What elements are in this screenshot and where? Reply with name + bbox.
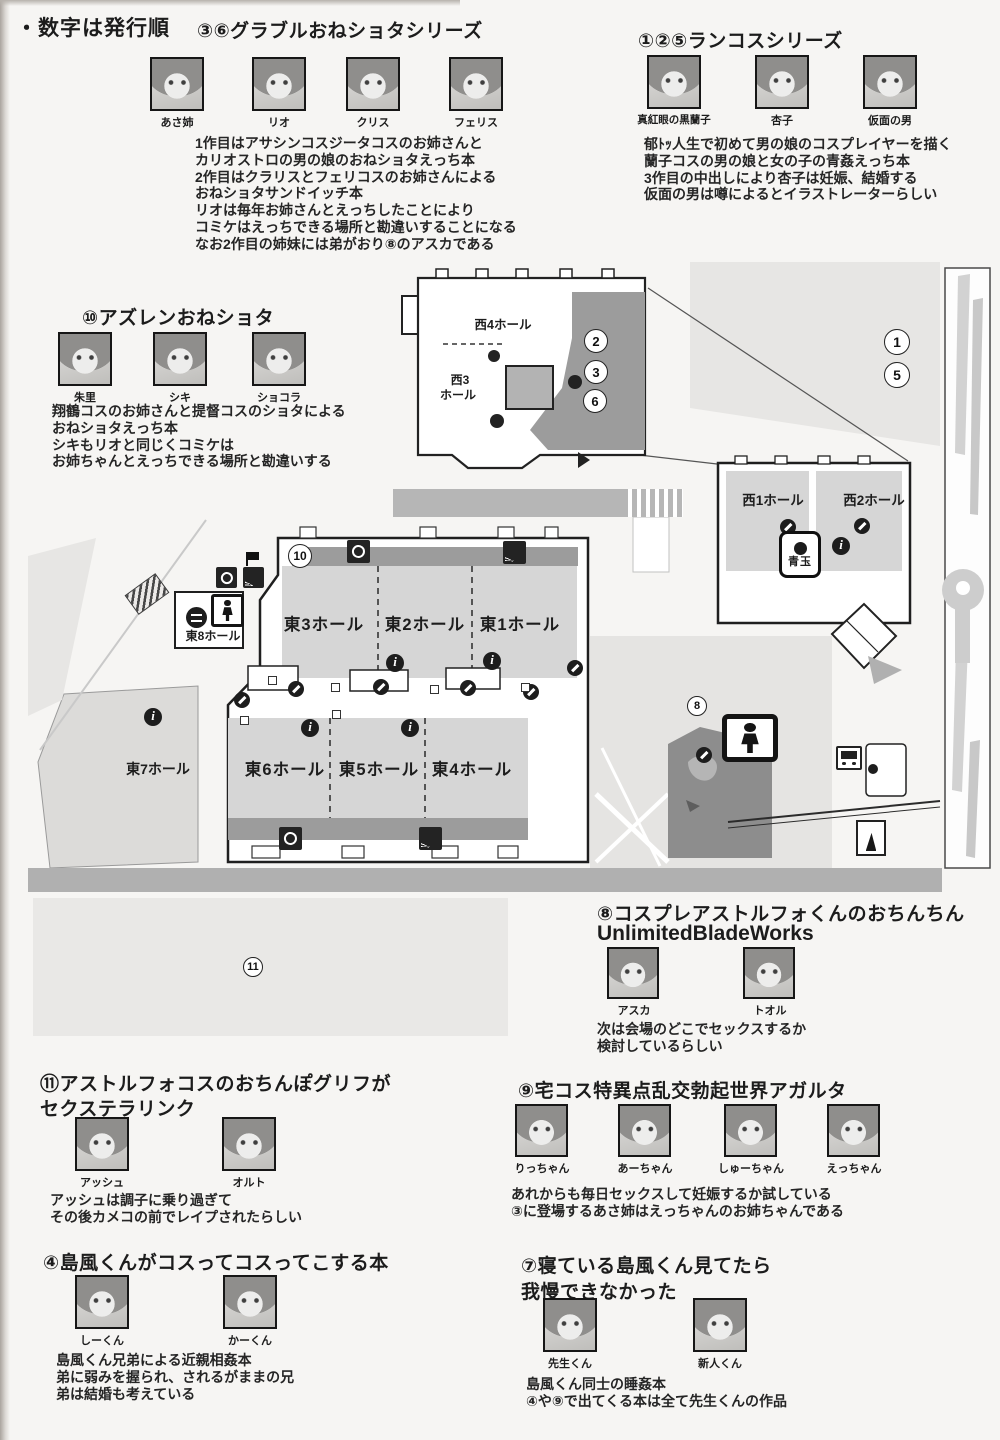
desc-line: 郁ﾄｯ人生で初めて男の娘のコスプレイヤーを描く (644, 136, 952, 153)
character-name: リオ (268, 114, 290, 130)
escalator-icon (234, 692, 250, 708)
character: 仮面の男 (863, 55, 917, 109)
character-avatar (346, 57, 400, 111)
desc-line: 1作目はアサシンコスジータコスのお姉さんと (195, 135, 517, 152)
desc-line: 弟は結婚も考えている (56, 1386, 294, 1403)
character: りっちゃん (515, 1104, 569, 1157)
desc-line: 島風くん兄弟による近親相姦本 (56, 1352, 294, 1369)
character-name: あさ姉 (161, 114, 194, 130)
map-marker-11: 11 (243, 957, 263, 977)
character-avatar (449, 57, 503, 111)
character: 先生くん (543, 1298, 597, 1352)
character-name: フェリス (454, 114, 498, 130)
info-icon (144, 708, 162, 726)
character: かーくん (223, 1275, 277, 1329)
hall-label-east5: 東5ホール (339, 756, 419, 780)
character-avatar (150, 57, 204, 111)
hall-label-east4: 東4ホール (432, 756, 512, 780)
pillar-marker (268, 676, 277, 685)
character-avatar (743, 947, 795, 999)
character-avatar (755, 55, 809, 109)
desc-line: お姉ちゃんとえっちできる場所と勘違いする (52, 453, 346, 470)
character-name: 杏子 (771, 112, 793, 128)
page-note: ・数字は発行順 (16, 12, 170, 42)
info-icon (483, 652, 501, 670)
character: あさ姉 (150, 57, 204, 111)
badge-dot-icon (794, 542, 807, 555)
desc-line: おねショタサンドイッチ本 (195, 185, 517, 202)
section-title-rancos: ①②⑤ランコスシリーズ (638, 26, 843, 53)
section-description: 1作目はアサシンコスジータコスのお姉さんと カリオストロの男の娘のおねショタえっ… (195, 135, 517, 253)
section-description: 翔鶴コスのお姉さんと提督コスのショタによる おねショタえっち本 シキもリオと同じ… (52, 403, 346, 470)
hall-label-east6: 東6ホール (245, 756, 325, 780)
pillar-marker (331, 683, 340, 692)
character-avatar (75, 1117, 129, 1171)
escalator-icon (288, 681, 304, 697)
hall-label-west1: 西1ホール (742, 489, 804, 509)
doujin-afterword-page: ・数字は発行順 ③⑥グラブルおねショタシリーズ あさ姉 リオ クリス フェリス … (0, 0, 1000, 1440)
character-avatar (75, 1275, 129, 1329)
character: リオ (252, 57, 306, 111)
meeting-point-badge: 青玉 (779, 531, 821, 578)
changing-room-icon (503, 541, 526, 564)
character: しゅーちゃん (724, 1104, 778, 1157)
character-name: えっちゃん (827, 1160, 882, 1176)
hall-label-east3: 東3ホール (284, 611, 364, 635)
character-name: アッシュ (80, 1174, 124, 1190)
character: えっちゃん (827, 1104, 881, 1157)
desc-line: 島風くん同士の睡姦本 (526, 1376, 787, 1393)
desc-line: 弟に弱みを握られ、されるがままの兄 (56, 1369, 294, 1386)
character-avatar (724, 1104, 777, 1157)
character-name: 先生くん (548, 1355, 592, 1371)
character-avatar (607, 947, 659, 999)
crosswalk (628, 489, 683, 517)
escalator-icon (854, 518, 870, 534)
section-title-granblue: ③⑥グラブルおねショタシリーズ (197, 16, 483, 43)
pillar-marker (521, 683, 530, 692)
escalator-icon (567, 660, 583, 676)
changing-room-icon (419, 827, 442, 850)
desc-line: 2作目はクラリスとフェリコスのお姉さんによる (195, 169, 517, 186)
character-avatar (515, 1104, 568, 1157)
info-icon (401, 719, 419, 737)
monument-icon (856, 820, 886, 856)
character-avatar (693, 1298, 747, 1352)
station-icon (186, 607, 207, 628)
character-avatar (222, 1117, 276, 1171)
section-description: 郁ﾄｯ人生で初めて男の娘のコスプレイヤーを描く 蘭子コスの男の娘と女の子の青姦え… (644, 136, 952, 203)
map-marker-8: 8 (687, 696, 707, 716)
desc-line: なお2作目の姉妹には弟がおり⑧のアスカである (195, 236, 517, 253)
character-name: かーくん (228, 1332, 272, 1348)
dot-icon (868, 764, 878, 774)
desc-line: カリオストロの男の娘のおねショタえっち本 (195, 152, 517, 169)
character-avatar (58, 332, 112, 386)
pillar-marker (240, 716, 249, 725)
character-name: オルト (233, 1174, 266, 1190)
desc-line: 蘭子コスの男の娘と女の子の青姦えっち本 (644, 153, 952, 170)
escalator-icon (696, 747, 712, 763)
section-title-azurlane: ⑩アズレンおねショタ (82, 303, 274, 330)
cloakroom-icon (279, 827, 302, 850)
section-title-shimakaze7: ⑦寝ている島風くん見てたら (521, 1251, 772, 1278)
character-avatar (827, 1104, 880, 1157)
character-name: 真紅眼の黒蘭子 (637, 112, 711, 127)
map-marker-1: 1 (884, 329, 910, 355)
desc-line: 検討しているらしい (597, 1038, 806, 1055)
character-name: あーちゃん (618, 1160, 673, 1176)
section-title-agartha9: ⑨宅コス特異点乱交勃起世界アガルタ (518, 1076, 847, 1103)
character: シキ (153, 332, 207, 386)
section-title-shimakaze4: ④島風くんがコスってコスってこする本 (43, 1248, 389, 1275)
map-marker-2: 2 (584, 329, 608, 353)
escalator-icon (460, 680, 476, 696)
character-name: 仮面の男 (868, 112, 912, 128)
section-description: 島風くん同士の睡姦本 ④や⑨で出てくる本は全て先生くんの作品 (526, 1376, 787, 1410)
map-marker-10: 10 (288, 544, 312, 568)
desc-line: シキもリオと同じくコミケは (52, 437, 346, 454)
character-name: クリス (357, 114, 390, 130)
character: アスカ (607, 947, 661, 999)
character: オルト (222, 1117, 276, 1171)
flag-icon (246, 552, 258, 566)
desc-line: あれからも毎日セックスして妊娠するか試している (511, 1186, 844, 1203)
storage-hatched-box (125, 573, 170, 615)
toilet-icon (722, 714, 778, 762)
character-avatar (153, 332, 207, 386)
desc-line: おねショタえっち本 (52, 420, 346, 437)
character-avatar (543, 1298, 597, 1352)
character-name: りっちゃん (515, 1160, 570, 1176)
character: 新人くん (693, 1298, 747, 1352)
page-edge-shadow-top (0, 0, 460, 6)
info-icon (386, 654, 404, 672)
character-avatar (647, 55, 701, 109)
desc-line: 仮面の男は噂によるとイラストレーターらしい (644, 186, 952, 203)
character: あーちゃん (618, 1104, 672, 1157)
toilet-icon (211, 594, 244, 627)
hall-label-west2: 西2ホール (843, 489, 905, 509)
character: 杏子 (755, 55, 809, 109)
section-description: 次は会場のどこでセックスするか 検討しているらしい (597, 1021, 806, 1055)
character: アッシュ (75, 1117, 129, 1171)
page-edge-shadow (0, 0, 10, 1440)
character-avatar (252, 57, 306, 111)
desc-line: 翔鶴コスのお姉さんと提督コスのショタによる (52, 403, 346, 420)
bus-stop-icon (836, 746, 862, 770)
section-title-astolfo8-line2: UnlimitedBladeWorks (597, 922, 814, 946)
changing-room-icon (243, 567, 264, 588)
character-name: 新人くん (698, 1355, 742, 1371)
hall-label-east8: 東8ホール (186, 627, 241, 644)
character: トオル (743, 947, 797, 999)
cloakroom-icon (216, 567, 237, 588)
cloakroom-icon (347, 540, 370, 563)
character-name: しーくん (80, 1332, 124, 1348)
info-icon (832, 537, 850, 555)
pillar-marker (430, 685, 439, 694)
section-title-astolfo11: ⑪アストルフォコスのおちんぽグリフが (40, 1069, 391, 1096)
desc-line: ③に登場するあさ姉はえっちゃんのお姉ちゃんである (511, 1203, 844, 1220)
character: クリス (346, 57, 400, 111)
desc-line: リオは毎年お姉さんとえっちしたことにより (195, 202, 517, 219)
character-name: トオル (754, 1002, 787, 1018)
desc-line: その後カメコの前でレイプされたらしい (50, 1209, 302, 1226)
escalator-icon (373, 679, 389, 695)
desc-line: ④や⑨で出てくる本は全て先生くんの作品 (526, 1393, 787, 1410)
character: ショコラ (252, 332, 306, 386)
badge-label: 青玉 (788, 557, 812, 568)
map-marker-3: 3 (584, 360, 608, 384)
pillar-marker (332, 710, 341, 719)
hall-label-west3-line2: ホール (440, 386, 476, 403)
character: 朱里 (58, 332, 112, 386)
character-avatar (252, 332, 306, 386)
section-description: あれからも毎日セックスして妊娠するか試している ③に登場するあさ姉はえっちゃんの… (511, 1186, 844, 1220)
map-marker-6: 6 (583, 389, 607, 413)
character-avatar (223, 1275, 277, 1329)
section-description: 島風くん兄弟による近親相姦本 弟に弱みを握られ、されるがままの兄 弟は結婚も考え… (56, 1352, 294, 1402)
character: しーくん (75, 1275, 129, 1329)
character: フェリス (449, 57, 503, 111)
map-marker-5: 5 (884, 362, 910, 388)
hall-label-east2: 東2ホール (385, 611, 465, 635)
hall-label-east7: 東7ホール (126, 759, 190, 779)
hall-label-west4: 西4ホール (475, 314, 532, 333)
character: 真紅眼の黒蘭子 (647, 55, 701, 109)
character-avatar (863, 55, 917, 109)
character-name: しゅーちゃん (718, 1160, 784, 1176)
desc-line: 次は会場のどこでセックスするか (597, 1021, 806, 1038)
character-name: アスカ (618, 1002, 651, 1018)
desc-line: アッシュは調子に乗り過ぎて (50, 1192, 302, 1209)
desc-line: 3作目の中出しにより杏子は妊娠、結婚する (644, 170, 952, 187)
hall-label-east1: 東1ホール (480, 611, 560, 635)
character-avatar (618, 1104, 671, 1157)
section-description: アッシュは調子に乗り過ぎて その後カメコの前でレイプされたらしい (50, 1192, 302, 1226)
info-icon (301, 719, 319, 737)
desc-line: コミケはえっちできる場所と勘違いすることになる (195, 219, 517, 236)
